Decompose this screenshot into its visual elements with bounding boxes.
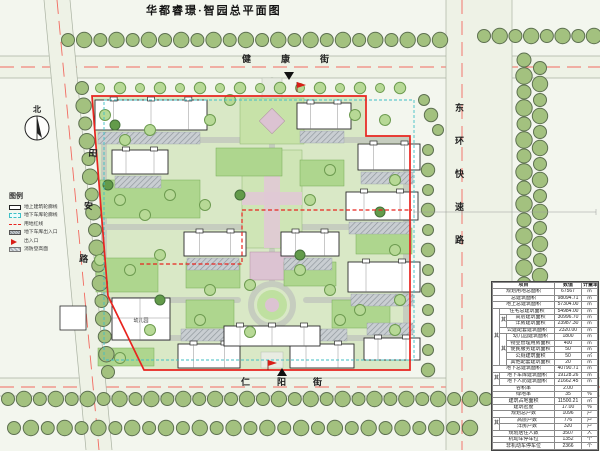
page-title: 华都睿璟·智园总平面图 — [146, 2, 282, 18]
tree — [125, 420, 140, 435]
tree — [192, 420, 207, 435]
tree — [109, 422, 122, 435]
tree — [41, 422, 54, 435]
tree — [226, 420, 241, 435]
stat-label: 非机动车停车位 — [493, 443, 555, 450]
stat-value: 2366 — [555, 443, 582, 450]
tree — [115, 195, 126, 206]
statistics-table: 项目 数值 计量单位 规划用地总面积67567㎡总建筑面积98094.71㎡地上… — [491, 281, 599, 451]
tree — [80, 391, 95, 406]
stat-value: 54984.00 — [555, 308, 582, 314]
tree — [421, 163, 434, 176]
tree — [534, 254, 547, 267]
lawn — [300, 160, 344, 186]
fire-surface-icon — [9, 247, 21, 252]
lawn — [186, 300, 234, 328]
tree — [145, 325, 156, 336]
tree — [244, 422, 257, 435]
tree — [555, 28, 570, 43]
tree — [33, 393, 46, 406]
tree — [159, 34, 172, 47]
legend-item-label: 地上建筑轮廓线 — [24, 205, 58, 210]
tree — [534, 94, 547, 107]
legend-item: 消防登高面 — [9, 247, 87, 253]
tree — [205, 285, 216, 296]
tree — [516, 196, 532, 212]
tree — [432, 32, 447, 47]
tree — [399, 391, 414, 406]
tree — [509, 30, 522, 43]
tree — [423, 225, 434, 236]
building-footprint — [281, 232, 339, 256]
tree — [165, 190, 176, 201]
building-footprint — [364, 338, 420, 360]
legend-title: 图例 — [9, 191, 87, 201]
tree — [102, 366, 115, 379]
tree — [517, 117, 531, 131]
legend-item: 用地红线 — [9, 221, 87, 227]
tree — [516, 132, 532, 148]
tree — [200, 200, 211, 211]
tree — [517, 149, 531, 163]
kindergarten-label: 幼儿园 — [133, 317, 148, 324]
tree — [158, 420, 173, 435]
tree — [423, 145, 434, 156]
tree — [76, 32, 91, 47]
tree — [195, 315, 206, 326]
tree — [354, 82, 365, 93]
tree — [125, 265, 136, 276]
stat-value: 11500.21 — [555, 398, 582, 404]
fire-surface — [284, 258, 332, 270]
tree — [390, 175, 401, 186]
tree — [368, 32, 383, 47]
tree — [95, 295, 108, 308]
tree — [413, 422, 426, 435]
stat-label: 地下车库建筑面积 — [500, 372, 555, 378]
legend-item-label: 消防登高面 — [24, 247, 48, 252]
tree — [245, 280, 256, 291]
tree — [223, 34, 236, 47]
tree — [312, 422, 325, 435]
tree — [144, 391, 159, 406]
building-footprint — [178, 344, 240, 368]
tree — [325, 285, 336, 296]
tree — [79, 117, 92, 130]
tree — [352, 393, 365, 406]
tree — [345, 422, 358, 435]
stats-table: 项目 数值 计量单位 规划用地总面积67567㎡总建筑面积98094.71㎡地上… — [492, 282, 598, 450]
tree — [207, 391, 222, 406]
stat-group: 其中 — [493, 417, 500, 430]
tree — [395, 295, 406, 306]
tree — [353, 34, 366, 47]
tree — [390, 325, 401, 336]
tree — [517, 213, 531, 227]
tree — [400, 32, 415, 47]
tree — [424, 108, 437, 121]
tree — [140, 210, 151, 221]
tree — [256, 34, 269, 47]
tree — [94, 34, 107, 47]
stat-value: 19128.26 — [555, 372, 582, 378]
tree — [517, 181, 531, 195]
tree — [375, 207, 385, 217]
building-footprint — [184, 232, 246, 256]
tree — [145, 125, 156, 136]
tree — [380, 115, 391, 126]
tree — [57, 420, 72, 435]
legend-item-label: 地下车库出入口 — [24, 230, 58, 235]
tree — [423, 265, 434, 276]
tree — [534, 222, 547, 235]
tree — [462, 420, 477, 435]
legend-item: 地下车库轮廓线 — [9, 213, 87, 219]
tree — [303, 391, 318, 406]
stat-label: 其他配套建筑面积 — [507, 359, 555, 365]
tree — [320, 393, 333, 406]
tree — [540, 30, 553, 43]
tree — [516, 100, 532, 116]
tree — [115, 353, 126, 364]
tree — [350, 110, 361, 121]
tree — [421, 283, 434, 296]
tree — [314, 82, 325, 93]
legend-items: 地上建筑轮廓线地下车库轮廓线用地红线地下车库出入口出入口消防登高面 — [9, 204, 87, 253]
tree — [534, 158, 547, 171]
tree — [256, 84, 265, 93]
tree — [154, 82, 165, 93]
garage-entry-icon — [9, 230, 21, 235]
tree — [155, 250, 166, 261]
fire-surface — [361, 172, 413, 184]
tree — [176, 391, 191, 406]
tree — [447, 422, 460, 435]
tree — [76, 82, 89, 95]
tree — [532, 76, 547, 91]
tree — [245, 327, 256, 338]
stat-label: 公建配套建筑面积 — [500, 327, 555, 333]
tree — [205, 115, 216, 126]
tree — [293, 420, 308, 435]
building-outline-icon — [9, 205, 21, 210]
tree — [421, 203, 434, 216]
north-label: 北 — [33, 104, 41, 114]
tree — [303, 32, 318, 47]
stat-value: 40790.71 — [555, 366, 582, 372]
tree — [586, 28, 600, 43]
legend-item: 地下车库出入口 — [9, 230, 87, 236]
tree — [110, 120, 120, 130]
lawn — [216, 148, 282, 176]
stat-group: 其中 — [493, 308, 500, 366]
tree — [534, 190, 547, 203]
tree — [516, 228, 532, 244]
tree — [327, 420, 342, 435]
tree — [385, 34, 398, 47]
tree — [429, 420, 444, 435]
tree — [97, 393, 110, 406]
legend: 图例 地上建筑轮廓线地下车库轮廓线用地红线地下车库出入口出入口消防登高面 — [9, 191, 87, 255]
stat-subgroup: 其中 — [500, 334, 507, 366]
tree — [191, 34, 204, 47]
stat-unit: 个 — [582, 443, 598, 450]
tree — [256, 393, 269, 406]
tree — [395, 420, 410, 435]
tree — [517, 245, 531, 259]
street-label-south: 仁阳街 — [241, 375, 349, 388]
tree — [8, 422, 21, 435]
tree — [367, 391, 382, 406]
tree — [216, 84, 225, 93]
tree — [462, 391, 477, 406]
stat-value: 57304.00 — [555, 302, 582, 308]
tree — [235, 190, 245, 200]
tree — [91, 420, 106, 435]
header-unit: 计量单位 — [582, 283, 598, 289]
tree — [572, 30, 585, 43]
red-line-icon — [9, 224, 21, 225]
tree — [423, 185, 434, 196]
tree — [423, 305, 434, 316]
tree — [394, 82, 405, 93]
tree — [239, 391, 254, 406]
tree — [325, 165, 336, 176]
tree — [516, 260, 532, 276]
legend-item: 出入口 — [9, 238, 87, 244]
tree — [421, 243, 434, 256]
legend-item-label: 用地红线 — [24, 222, 43, 227]
tree — [100, 110, 111, 121]
tree — [295, 265, 306, 276]
tree — [112, 391, 127, 406]
stat-label: 便民服务建筑面积 — [507, 347, 555, 353]
tree — [379, 422, 392, 435]
building-footprint — [290, 344, 354, 368]
stat-value: 21662.45 — [555, 379, 582, 385]
tree — [288, 393, 301, 406]
tree — [532, 172, 547, 187]
building-footprint — [112, 150, 168, 174]
tree — [532, 236, 547, 251]
tree — [305, 195, 316, 206]
tree — [274, 82, 285, 93]
entrance-flag-icon — [9, 239, 21, 244]
tree — [65, 393, 78, 406]
building-footprint — [297, 103, 351, 129]
tree — [194, 82, 205, 93]
tree — [206, 32, 221, 47]
tree — [384, 393, 397, 406]
tree — [516, 164, 532, 180]
tree — [517, 85, 531, 99]
street-label-east: 东环快速路 — [453, 103, 466, 268]
tree — [361, 420, 376, 435]
tree — [96, 84, 105, 93]
tree — [336, 84, 345, 93]
tree — [234, 82, 245, 93]
legend-item-label: 出入口 — [24, 239, 38, 244]
stat-value: 23987.30 — [555, 321, 582, 327]
stat-label: 物业管理用房面积 — [507, 340, 555, 346]
tree — [517, 53, 531, 67]
tree — [416, 393, 429, 406]
legend-item-label: 地下车库轮廓线 — [24, 213, 58, 218]
tree — [433, 125, 444, 136]
tree — [534, 126, 547, 139]
tree — [516, 68, 532, 84]
tree — [174, 32, 189, 47]
tree — [335, 32, 350, 47]
tree — [390, 245, 401, 256]
gatehouse-building — [60, 306, 86, 330]
tree — [141, 32, 156, 47]
tree — [260, 420, 275, 435]
tree — [355, 305, 366, 316]
stat-label: 幼儿园建筑面积 — [507, 334, 555, 340]
tree — [23, 420, 38, 435]
tree — [376, 84, 385, 93]
tree — [193, 393, 206, 406]
fire-surface — [349, 222, 411, 234]
tree — [320, 34, 333, 47]
tree — [95, 311, 110, 326]
tree — [126, 34, 139, 47]
tree — [492, 28, 507, 43]
tree — [431, 391, 446, 406]
table-row: 非机动车停车位2366个 — [493, 443, 598, 450]
tree — [210, 422, 223, 435]
tree — [76, 98, 91, 113]
fire-surface — [300, 131, 344, 143]
tree — [103, 180, 113, 190]
tree — [335, 391, 350, 406]
tree — [114, 82, 125, 93]
tree — [335, 315, 346, 326]
tree — [478, 30, 491, 43]
tree — [143, 422, 156, 435]
legend-item: 地上建筑轮廓线 — [9, 204, 87, 210]
tree — [98, 330, 111, 343]
stat-group: 其中 — [493, 372, 500, 385]
tree — [532, 140, 547, 155]
garage-outline-icon — [9, 213, 21, 218]
tree — [161, 393, 174, 406]
stat-value: 98094.71 — [555, 295, 582, 301]
site-plan-sheet: 北 幼儿园 华都睿璟·智园总平面图 健康街 仁阳街 东环快速路 田安路 图例 地… — [0, 0, 600, 450]
tree — [238, 32, 253, 47]
tree — [92, 276, 107, 291]
tree — [62, 34, 75, 47]
tree — [176, 422, 189, 435]
tree — [176, 84, 185, 93]
tree — [295, 250, 305, 260]
tree — [48, 391, 63, 406]
tree — [75, 422, 88, 435]
tree — [136, 84, 145, 93]
tree — [421, 363, 434, 376]
tree — [120, 135, 131, 146]
tree — [79, 134, 94, 149]
tree — [419, 95, 430, 106]
tree — [16, 391, 31, 406]
tree — [421, 323, 434, 336]
tree — [532, 108, 547, 123]
tree — [2, 393, 15, 406]
tree — [155, 295, 165, 305]
stat-label: 地下人防建筑面积 — [500, 379, 555, 385]
tree — [278, 422, 291, 435]
tree — [448, 393, 461, 406]
tree — [225, 393, 238, 406]
street-label-north: 健康街 — [242, 52, 359, 65]
tree — [271, 32, 286, 47]
tree — [271, 391, 286, 406]
tree — [288, 34, 301, 47]
stat-value: 30996.70 — [555, 314, 582, 320]
tree — [417, 34, 430, 47]
tree — [534, 62, 547, 75]
stat-subgroup: 其中 — [500, 314, 507, 327]
tree — [523, 28, 538, 43]
tree — [129, 393, 142, 406]
tree — [423, 345, 434, 356]
tree — [109, 32, 124, 47]
fire-surface — [115, 176, 161, 188]
